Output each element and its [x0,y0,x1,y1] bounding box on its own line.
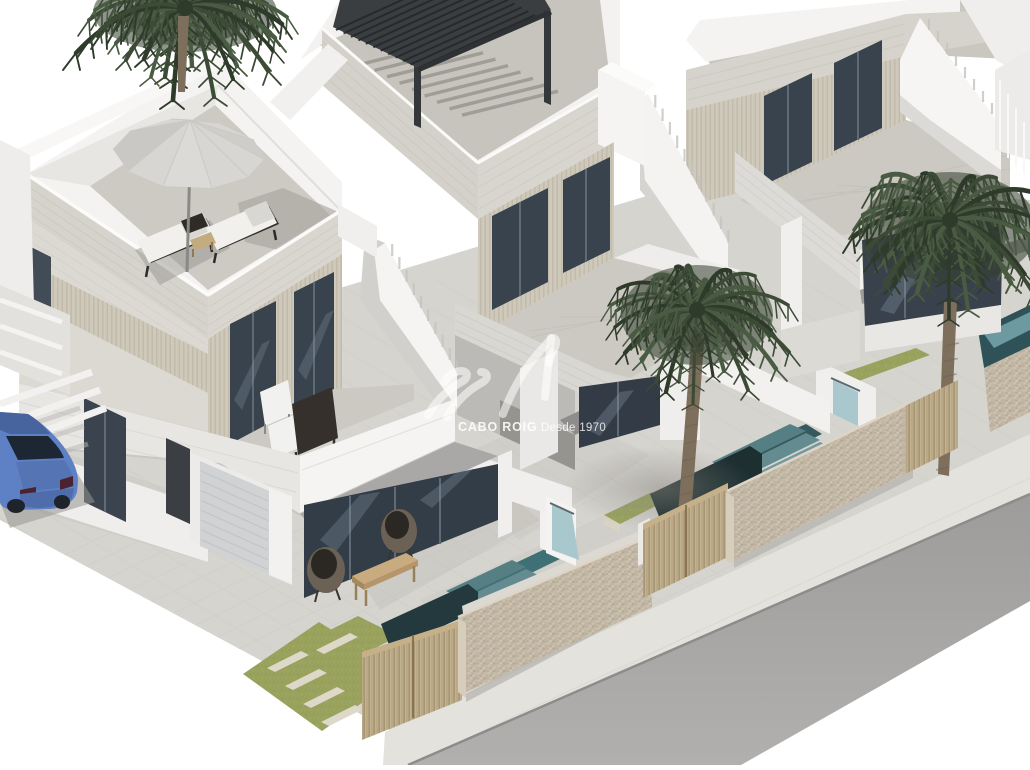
svg-text:CABO ROIG: CABO ROIG [458,420,537,434]
svg-text:Desde 1970: Desde 1970 [541,422,606,434]
